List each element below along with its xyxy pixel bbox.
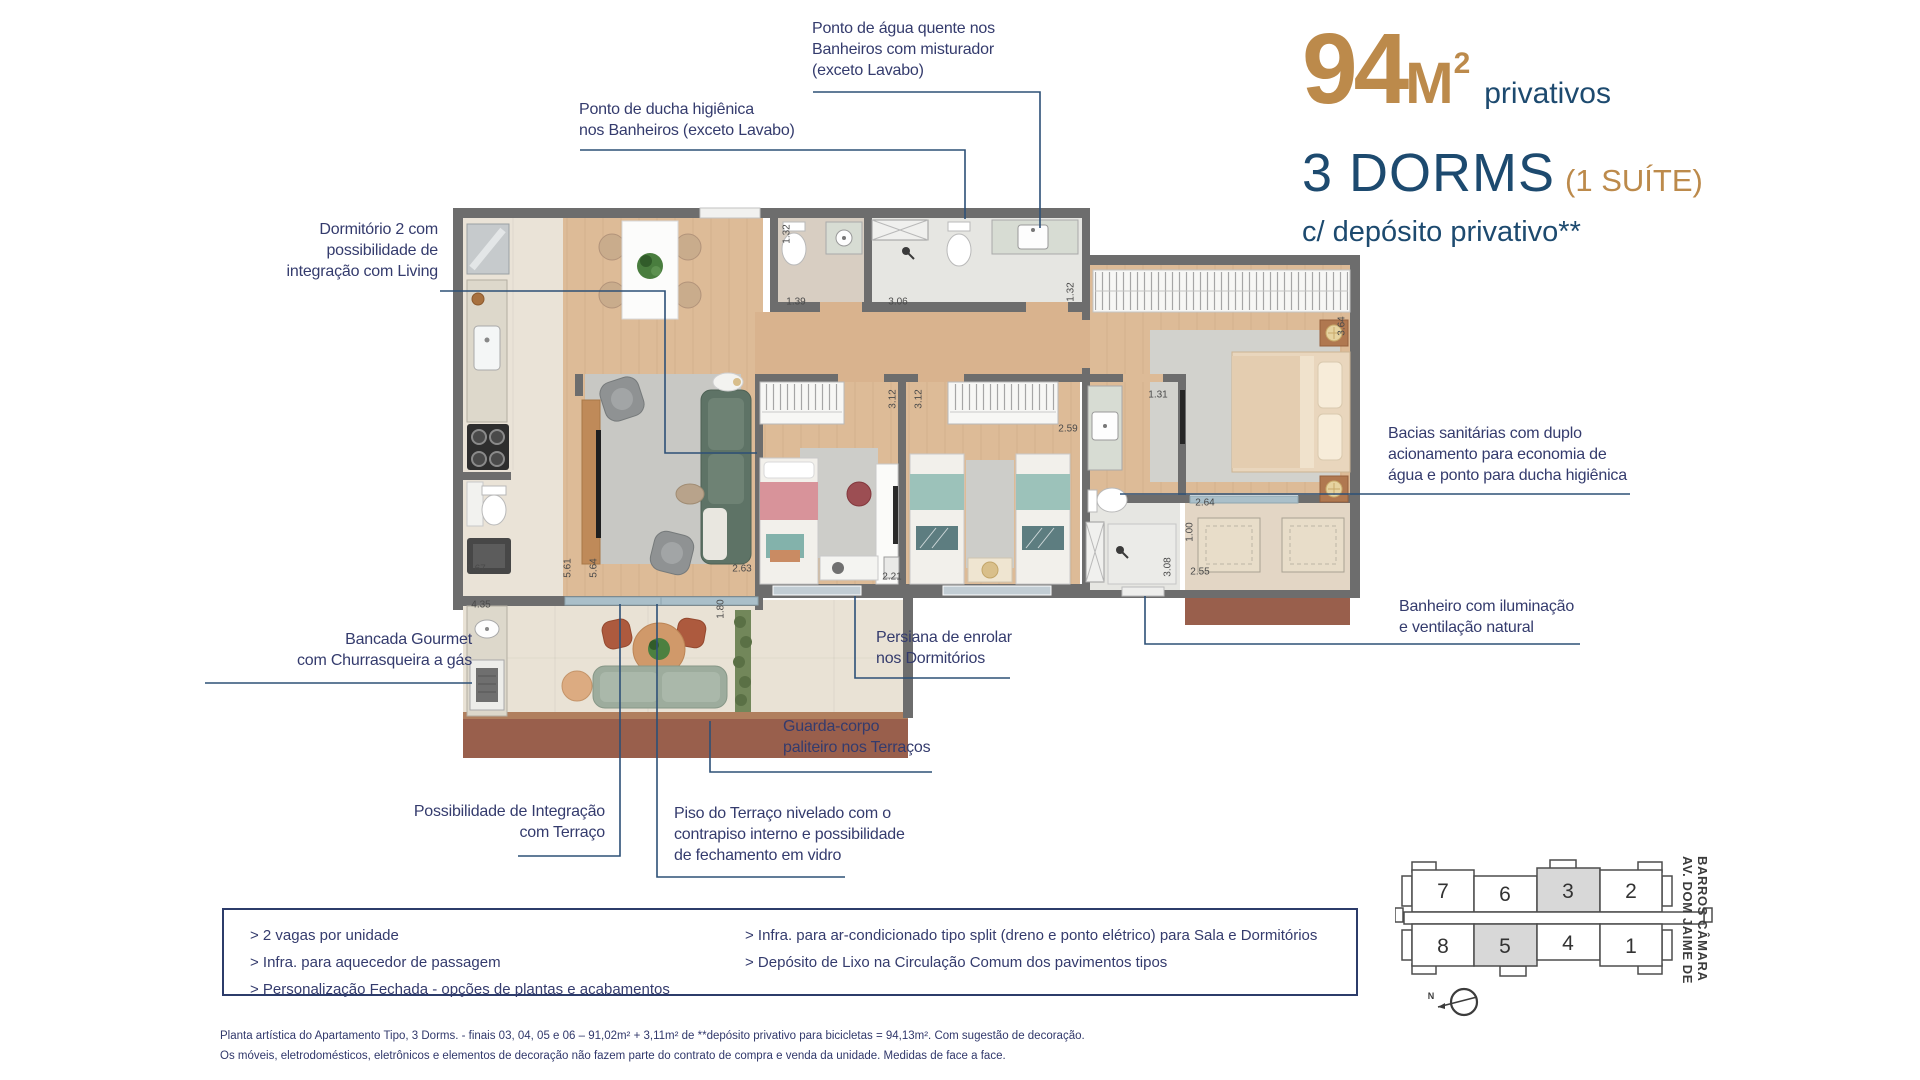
area-note: privativos — [1484, 77, 1611, 110]
callout-dormitorio2: Dormitório 2 com possibilidade de integr… — [250, 219, 438, 282]
dorms-title: 3 DORMS(1 SUÍTE) — [1302, 147, 1732, 213]
feature-item: > 2 vagas por unidade — [250, 922, 670, 949]
feature-column-left: > 2 vagas por unidade > Infra. para aque… — [250, 922, 670, 1003]
keyplan-cap — [1402, 876, 1412, 906]
keyplan-corridor — [1404, 912, 1704, 924]
unit-number: 8 — [1437, 935, 1449, 958]
feature-item: > Infra. para ar-condicionado tipo split… — [745, 922, 1317, 949]
keyplan: 7 6 3 2 8 5 4 1 N — [1395, 852, 1720, 1027]
feature-box: > 2 vagas por unidade > Infra. para aque… — [222, 908, 1358, 996]
callout-guarda-corpo: Guarda-corpo paliteiro nos Terraços — [783, 716, 930, 758]
suite-label: (1 SUÍTE) — [1565, 163, 1703, 198]
area-unit: M — [1405, 51, 1453, 116]
area-number: 94 — [1302, 13, 1405, 125]
feature-item: > Infra. para aquecedor de passagem — [250, 949, 670, 976]
disclaimer: Planta artística do Apartamento Tipo, 3 … — [220, 1026, 1320, 1066]
north-arrow: N — [1428, 989, 1477, 1015]
callout-persiana: Persiana de enrolar nos Dormitórios — [876, 627, 1012, 669]
unit-number: 3 — [1562, 880, 1574, 903]
callout-piso: Piso do Terraço nivelado com o contrapis… — [674, 803, 905, 866]
title-block: 94M2privativos 3 DORMS(1 SUÍTE) c/ depós… — [1302, 18, 1732, 249]
unit-number: 6 — [1499, 883, 1511, 906]
dorms-label: 3 DORMS — [1302, 143, 1555, 203]
feature-column-right: > Infra. para ar-condicionado tipo split… — [745, 922, 1317, 976]
feature-item: > Depósito de Lixo na Circulação Comum d… — [745, 949, 1317, 976]
callout-line-agua-quente — [813, 92, 1040, 228]
keyplan-cap — [1662, 876, 1672, 906]
deposit-note: c/ depósito privativo** — [1302, 215, 1732, 249]
callout-ducha: Ponto de ducha higiênica nos Banheiros (… — [579, 99, 795, 141]
callout-integracao: Possibilidade de Integração com Terraço — [390, 801, 605, 843]
floorplan-sheet: Ponto de água quente nos Banheiros com m… — [0, 0, 1920, 1080]
unit-number: 2 — [1625, 880, 1637, 903]
callout-bancada: Bancada Gourmet com Churrasqueira a gás — [262, 629, 472, 671]
north-label: N — [1428, 991, 1435, 1001]
area-sup: 2 — [1454, 47, 1471, 80]
callout-bacias: Bacias sanitárias com duplo acionamento … — [1388, 423, 1627, 486]
unit-number: 1 — [1625, 935, 1637, 958]
unit-number: 7 — [1437, 880, 1449, 903]
callout-line-dormitorio2 — [440, 291, 757, 453]
unit-number: 4 — [1562, 932, 1574, 955]
area-title: 94M2privativos — [1302, 18, 1732, 145]
callout-agua-quente: Ponto de água quente nos Banheiros com m… — [812, 18, 995, 81]
feature-item: > Personalização Fechada - opções de pla… — [250, 976, 670, 1003]
keyplan-cap — [1662, 930, 1672, 960]
callout-banheiro: Banheiro com iluminação e ventilação nat… — [1399, 596, 1574, 638]
keyplan-cap — [1402, 930, 1412, 960]
street-label: AV. DOM JAIME DE BARROS CÂMARA — [1680, 856, 1710, 1021]
callout-line-ducha — [580, 150, 965, 219]
unit-number: 5 — [1499, 935, 1511, 958]
